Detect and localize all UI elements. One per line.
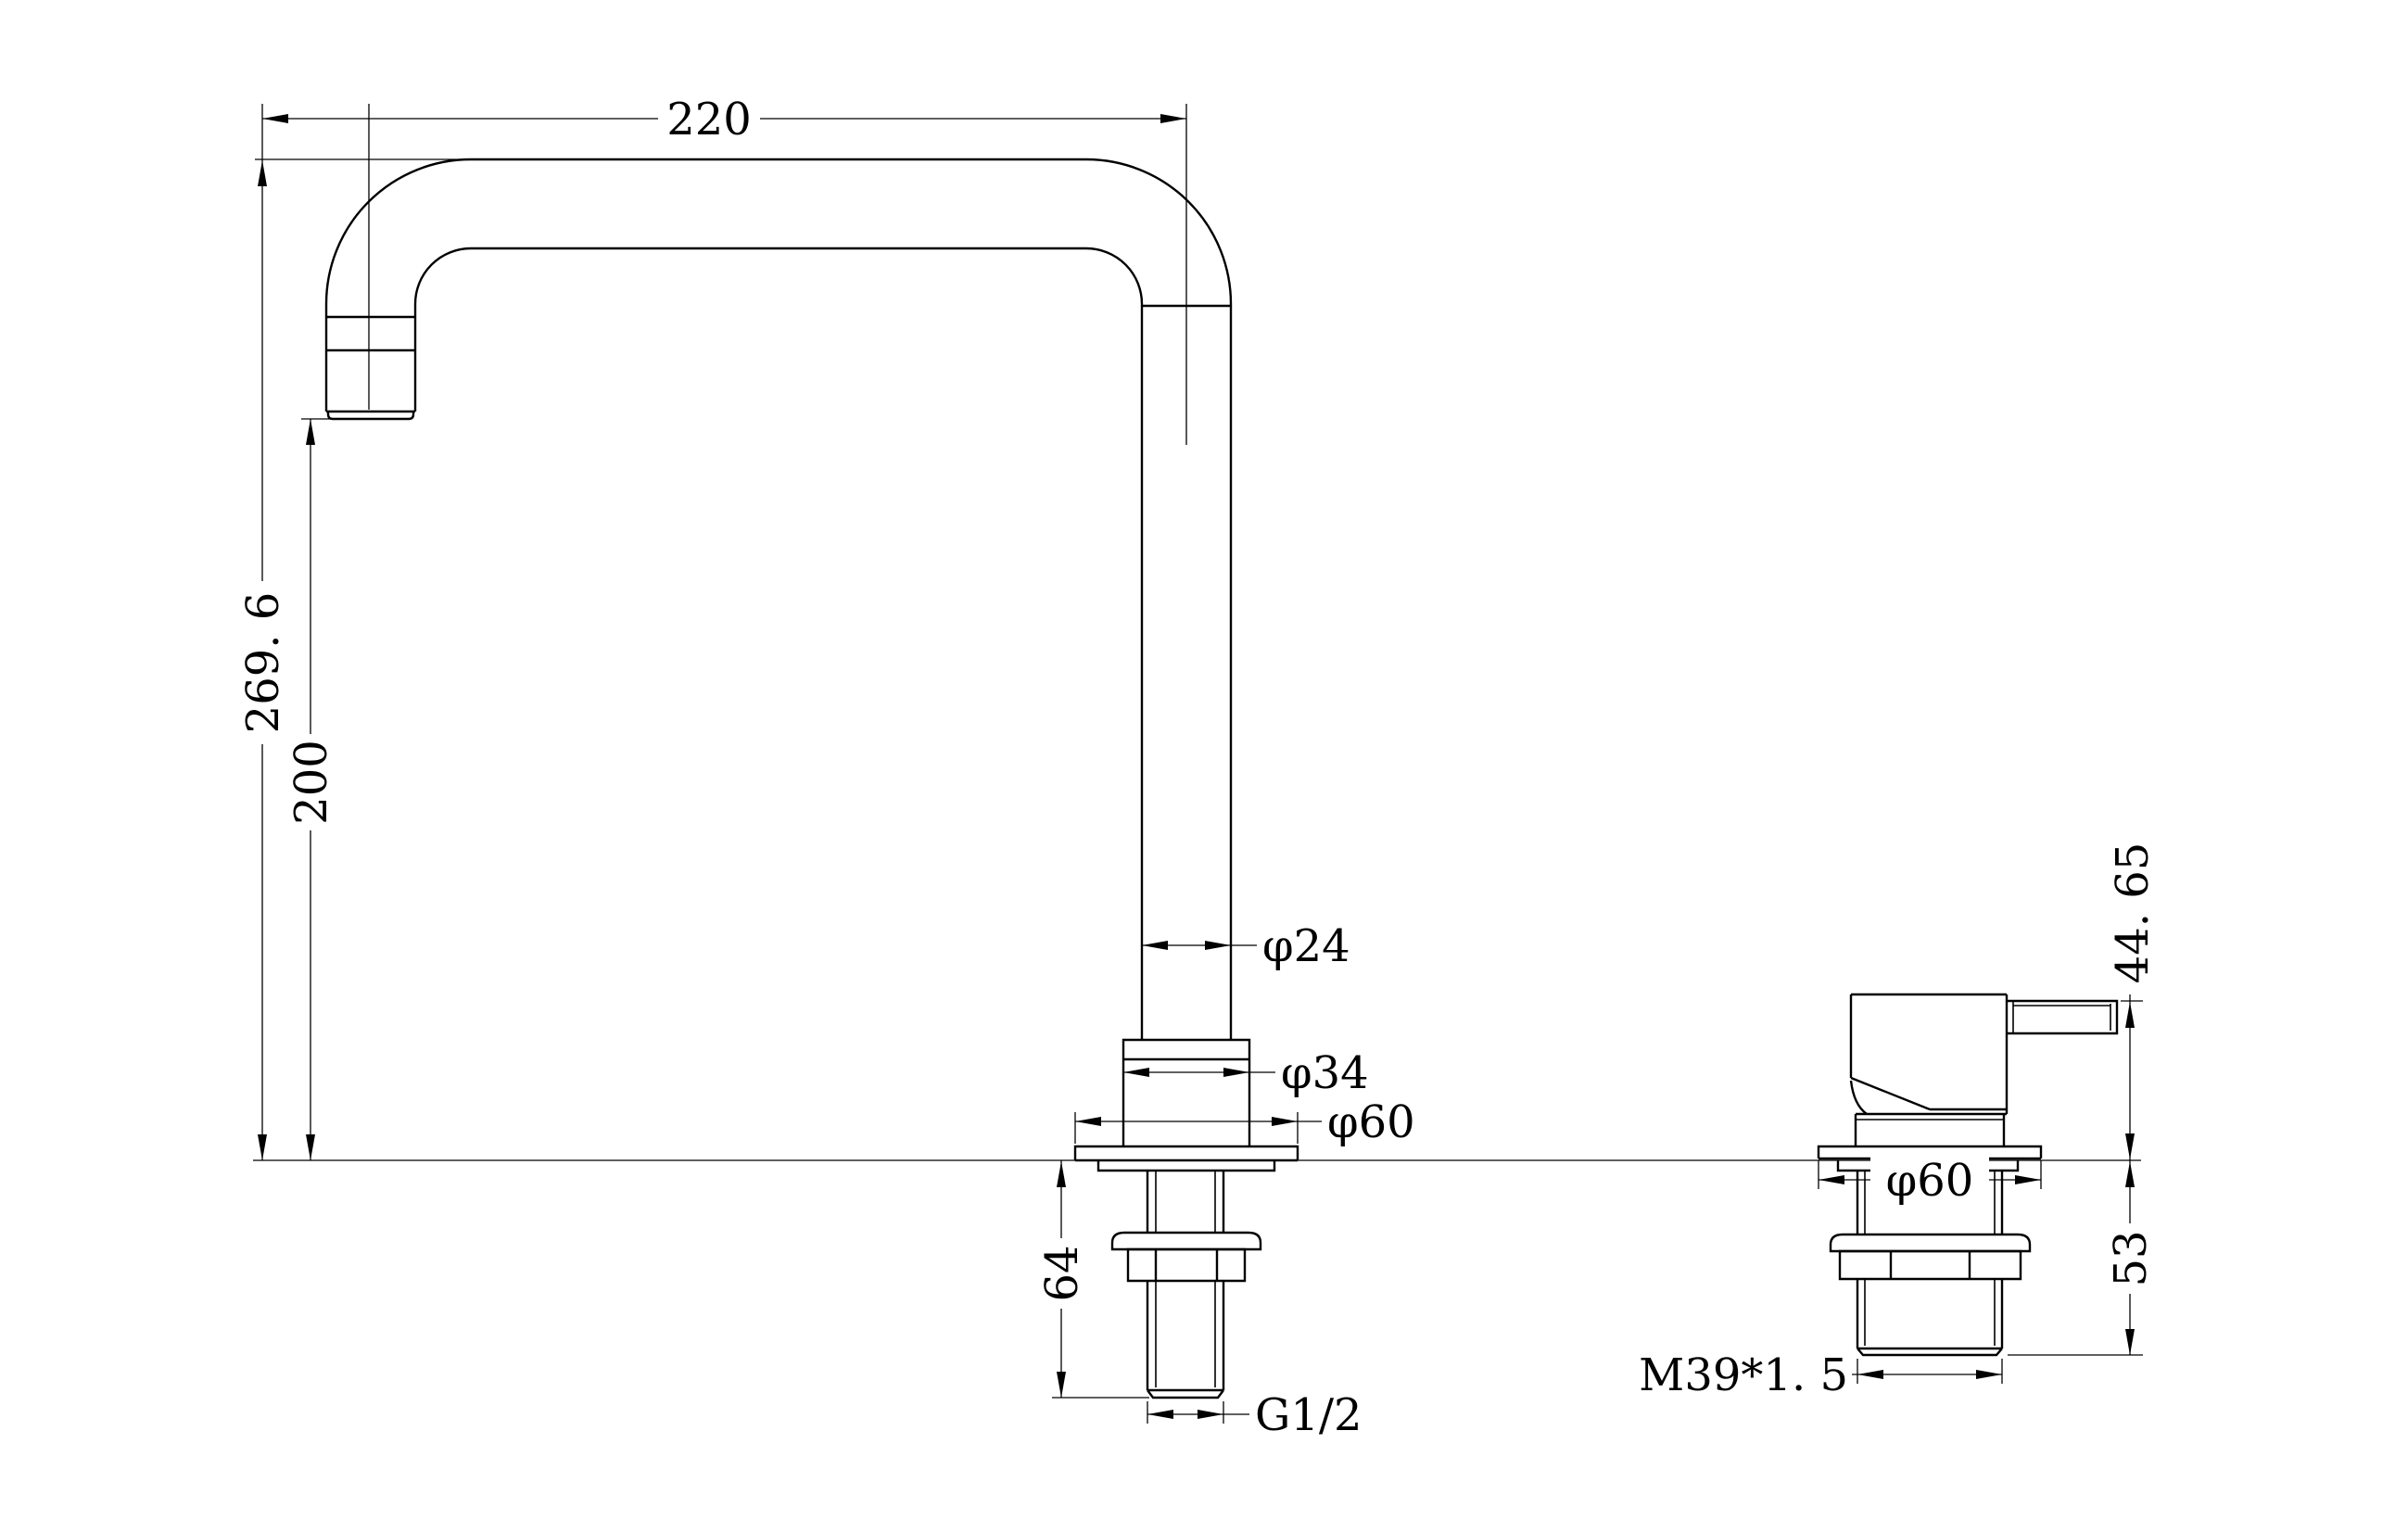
dimension-under-counter-depth: 64: [1036, 1160, 1149, 1398]
arrow-left: [262, 114, 288, 123]
dim-label-top-width: 220: [666, 94, 752, 146]
dimension-spout-diameter: φ24: [1142, 920, 1350, 972]
dim-label-outlet-thread: G1/2: [1255, 1389, 1362, 1441]
column-body: [1123, 1040, 1249, 1146]
side-hex-nut: [1840, 1251, 2021, 1279]
arrow-down: [258, 1134, 267, 1160]
dimension-column-diameter: φ34: [1123, 1047, 1369, 1099]
arrow-left: [1857, 1370, 1883, 1379]
shank-lower: [1857, 1279, 2002, 1348]
arrow-right: [1205, 941, 1231, 950]
arrow-left: [1819, 1175, 1844, 1184]
arrow-down: [2125, 1329, 2135, 1355]
dimension-side-flange-diameter: φ60: [1819, 1155, 2041, 1207]
arrow-up: [2125, 1161, 2135, 1187]
hex-nut: [1128, 1249, 1245, 1281]
dim-label-column-diameter: φ34: [1281, 1047, 1369, 1099]
dim-label-spout-diameter: φ24: [1262, 920, 1350, 972]
dim-label-under-counter-depth: 64: [1036, 1245, 1088, 1301]
tailpiece-thread-line: [1156, 1171, 1215, 1233]
arrow-right: [1272, 1117, 1298, 1126]
arrow-left: [1142, 941, 1168, 950]
arrow-down: [2125, 1133, 2135, 1159]
arrow-right: [1160, 114, 1186, 123]
hex-nut-facet: [1156, 1249, 1217, 1281]
dimension-top-width: 220: [262, 94, 1186, 1160]
handle-lever: [2007, 1001, 2117, 1033]
dim-label-side-flange-diameter: φ60: [1886, 1155, 1974, 1207]
technical-drawing: 220 269. 6 200: [0, 0, 2408, 1532]
dim-label-flange-diameter: φ60: [1327, 1096, 1415, 1148]
base-flange: [1075, 1146, 1298, 1160]
tube-outer-outline: [326, 159, 1231, 1040]
side-hex-nut-facet: [1891, 1251, 1970, 1279]
arrow-right: [1223, 1068, 1249, 1077]
tailpiece-bottom: [1147, 1390, 1223, 1398]
side-washer: [1831, 1234, 2030, 1251]
arrow-down: [1057, 1372, 1066, 1398]
tailpiece-lower: [1147, 1281, 1223, 1390]
spout-outlet-tip: [328, 411, 413, 419]
dim-label-handle-height: 44. 65: [2107, 842, 2159, 984]
arrow-up: [258, 160, 267, 186]
side-view: 44. 65 φ60 53: [1639, 831, 2159, 1401]
tailpiece-upper: [1147, 1171, 1223, 1233]
arrow-up: [306, 419, 315, 445]
dim-label-mounting-thread: M39*1. 5: [1639, 1349, 1848, 1401]
shank-bottom: [1857, 1348, 2002, 1355]
arrow-up: [1057, 1161, 1066, 1187]
spout-silhouette-arc: [1851, 1081, 1867, 1114]
dimension-handle-height: 44. 65: [2107, 831, 2159, 1160]
dim-label-spout-height: 200: [285, 740, 337, 825]
front-view: 220 269. 6 200: [237, 94, 2141, 1441]
body-slant-cut: [1851, 1078, 1930, 1109]
drawing-canvas: 220 269. 6 200: [0, 0, 2408, 1532]
gasket: [1098, 1160, 1274, 1171]
arrow-right: [1198, 1410, 1223, 1419]
arrow-left: [1075, 1117, 1101, 1126]
dim-label-shank-length: 53: [2105, 1230, 2157, 1286]
washer: [1112, 1233, 1261, 1249]
shank-thread-line: [1865, 1279, 1995, 1346]
arrow-left: [1123, 1068, 1149, 1077]
tube-inner-outline: [415, 248, 1142, 1040]
arrow-down: [306, 1134, 315, 1160]
dimension-mounting-thread: M39*1. 5: [1639, 1349, 2002, 1401]
dim-label-total-height: 269. 6: [237, 592, 289, 734]
dimension-spout-height: 200: [285, 419, 337, 1160]
arrow-left: [1147, 1410, 1173, 1419]
dimension-flange-diameter: φ60: [1075, 1096, 1415, 1148]
arrow-right: [2015, 1175, 2041, 1184]
dimension-shank-length: 53: [2008, 1160, 2157, 1355]
arrow-right: [1976, 1370, 2002, 1379]
arrow-up: [2125, 1002, 2135, 1028]
dimension-total-height: 269. 6: [237, 159, 473, 1160]
tailpiece-thread-line: [1156, 1281, 1215, 1387]
